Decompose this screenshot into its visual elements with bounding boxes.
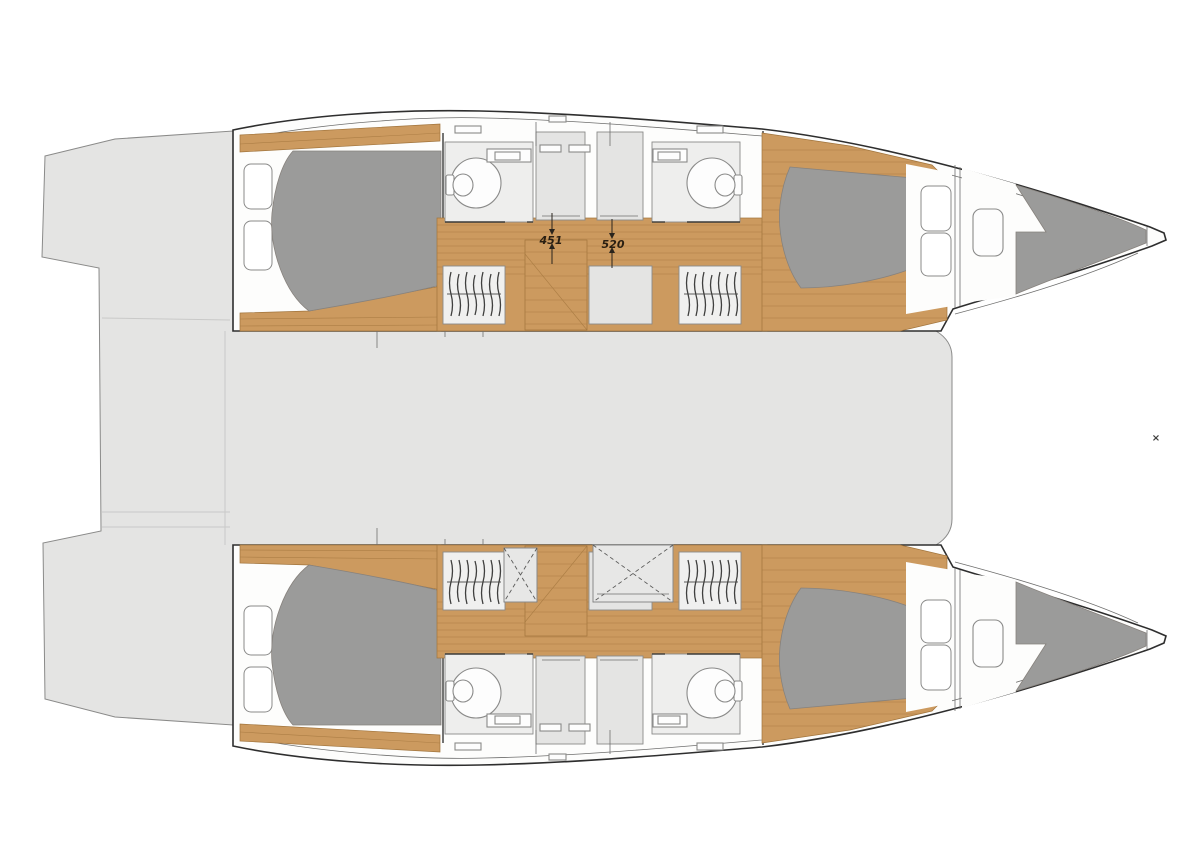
forepeak-hatch-icon (973, 209, 1003, 256)
hull-starboard (233, 528, 1166, 765)
forward-pillow-2 (921, 233, 951, 276)
aft-pillow-2 (244, 221, 272, 270)
forward-double-berth (779, 167, 913, 288)
toilet-bowl-icon (715, 174, 735, 196)
deck-hatch-small-1 (455, 126, 481, 133)
floor-plan-canvas: 451 520 × (0, 0, 1200, 857)
hull-port (233, 111, 1166, 348)
forepeak-locker-shading (1016, 185, 1146, 294)
shower-stall-right (597, 132, 643, 220)
catamaran-floor-plan: 451 520 × (0, 0, 1200, 857)
toilet-bowl-icon (453, 174, 473, 196)
aft-pillow-1 (244, 164, 272, 209)
bathroom-forward (652, 142, 742, 222)
deck-hatch-small-2 (697, 126, 723, 133)
dimension-label: 451 (539, 234, 563, 247)
locker-cabinet (589, 266, 652, 324)
dimension-label: 520 (602, 238, 625, 251)
companionway-tab (549, 116, 566, 122)
wardrobe-left (443, 266, 505, 324)
companionway-stairs (525, 240, 587, 330)
sink-basin-icon (495, 152, 520, 160)
sink-basin-icon (658, 152, 680, 160)
aft-double-berth (272, 151, 441, 311)
forepeak (962, 168, 1147, 303)
corner-x-marker: × (1152, 433, 1160, 444)
forward-pillow-1 (921, 186, 951, 231)
bathroom-aft (445, 142, 533, 222)
companionway-door-panel-1 (540, 145, 561, 152)
companionway-door-panel-2 (569, 145, 590, 152)
